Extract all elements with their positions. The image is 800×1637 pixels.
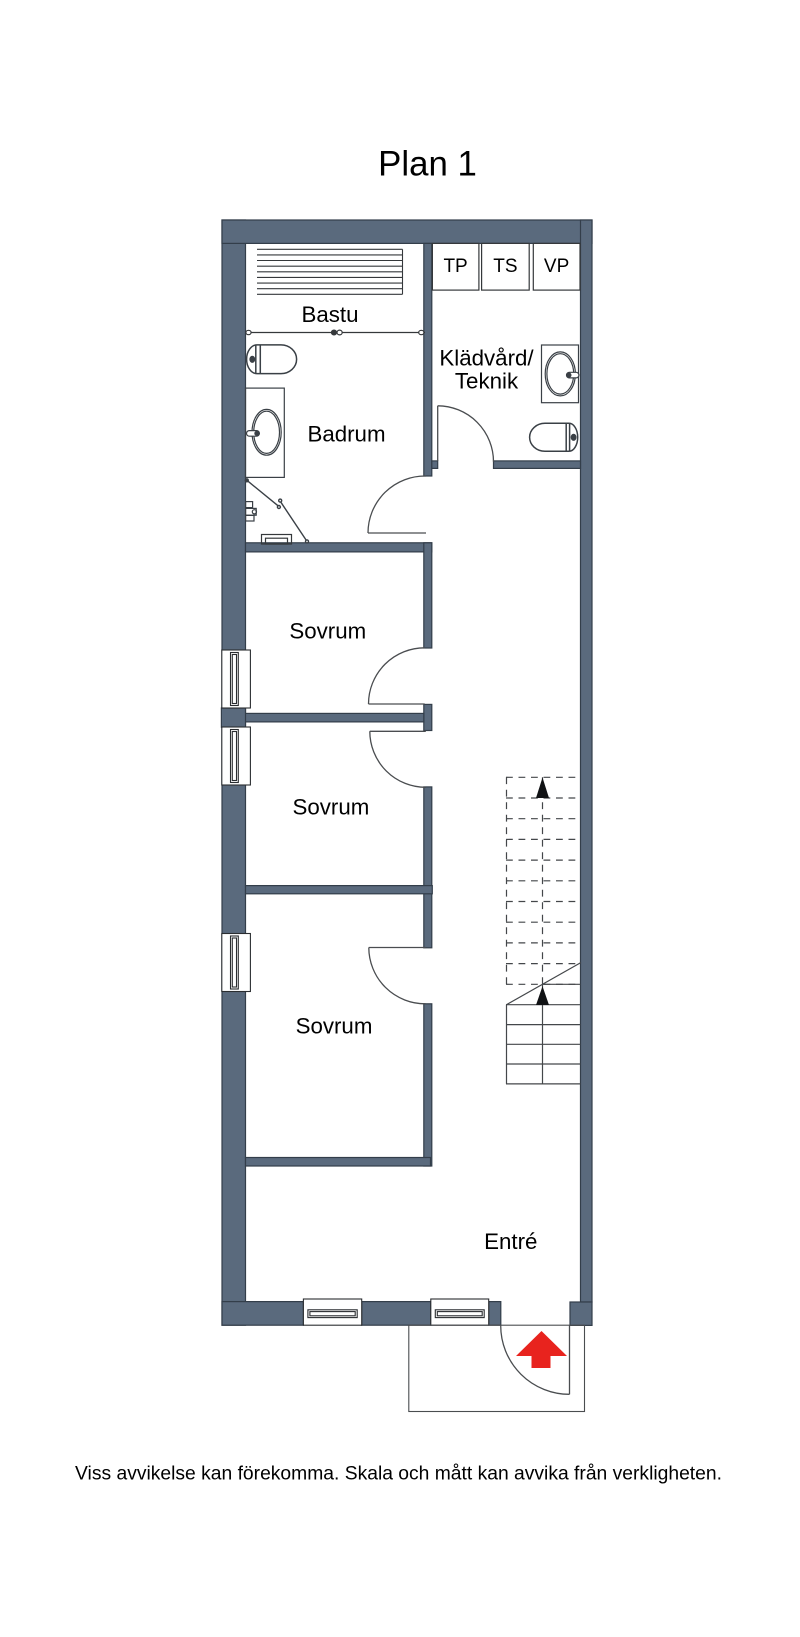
svg-text:Sovrum: Sovrum — [292, 795, 369, 820]
svg-text:Sovrum: Sovrum — [289, 619, 366, 644]
svg-text:Bastu: Bastu — [301, 302, 358, 327]
svg-text:TP: TP — [443, 256, 467, 277]
svg-text:Badrum: Badrum — [307, 422, 385, 447]
svg-text:Sovrum: Sovrum — [296, 1014, 373, 1039]
svg-text:Entré: Entré — [484, 1229, 537, 1254]
svg-text:TS: TS — [493, 256, 517, 277]
svg-text:VP: VP — [544, 256, 569, 277]
svg-text:Viss avvikelse kan förekomma.: Viss avvikelse kan förekomma. Skala och … — [75, 1463, 722, 1485]
svg-text:Teknik: Teknik — [455, 368, 519, 393]
svg-text:Plan 1: Plan 1 — [378, 145, 477, 184]
svg-text:Klädvård/: Klädvård/ — [439, 346, 534, 371]
